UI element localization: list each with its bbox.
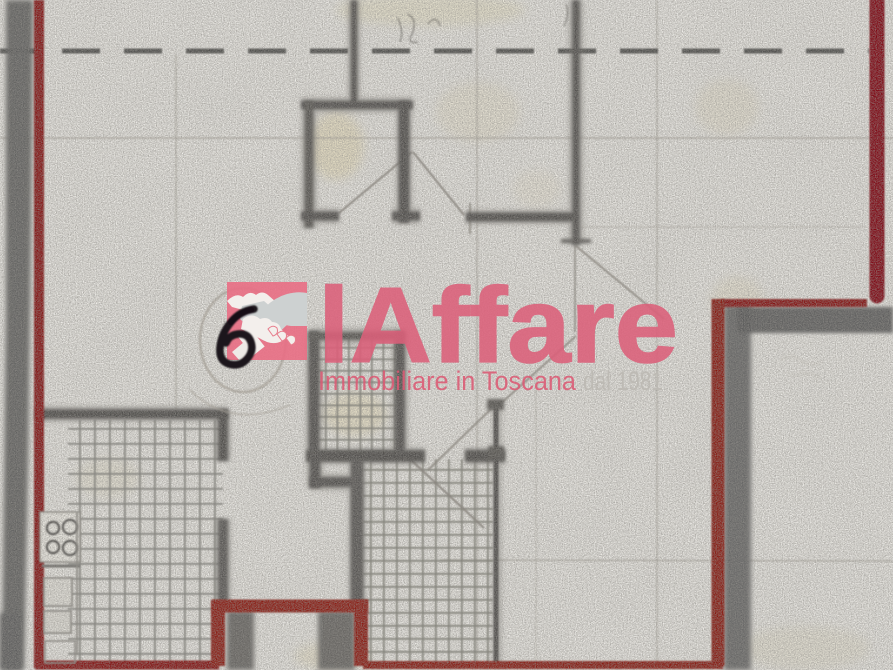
svg-text:Immobiliare in Toscana: Immobiliare in Toscana (318, 366, 577, 396)
svg-text:dal 1981: dal 1981 (583, 366, 663, 396)
